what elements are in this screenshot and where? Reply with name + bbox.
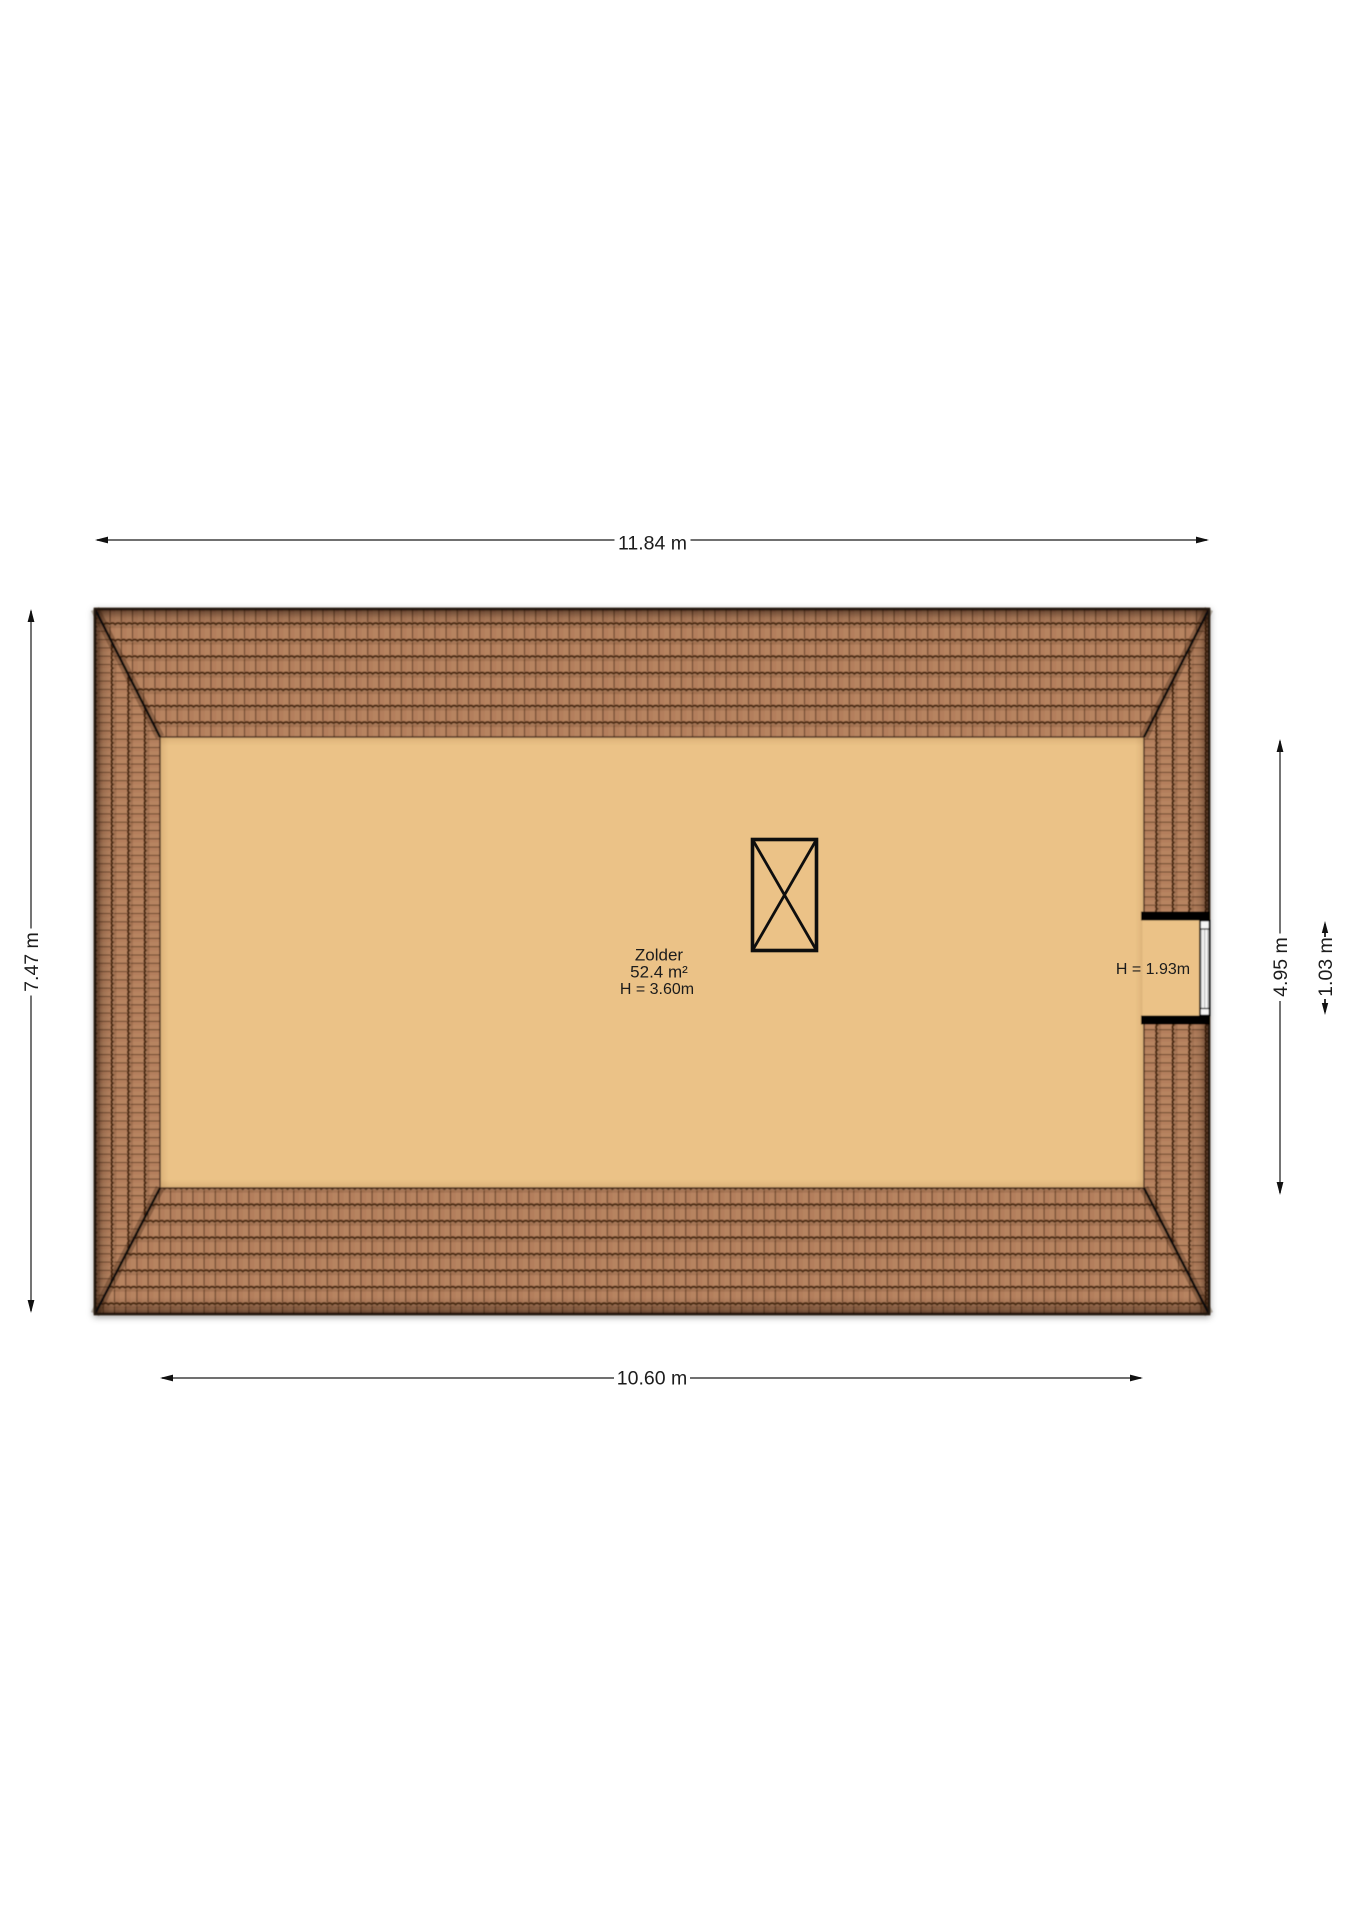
svg-text:4.95 m: 4.95 m: [1270, 937, 1292, 997]
svg-text:11.84 m: 11.84 m: [618, 533, 687, 555]
svg-text:H = 3.60m: H = 3.60m: [620, 981, 694, 998]
svg-text:7.47 m: 7.47 m: [21, 932, 43, 992]
svg-text:52.4 m²: 52.4 m²: [630, 963, 688, 982]
svg-text:1.03 m: 1.03 m: [1315, 937, 1337, 997]
svg-text:10.60 m: 10.60 m: [617, 1368, 687, 1390]
svg-text:H = 1.93m: H = 1.93m: [1116, 961, 1190, 978]
